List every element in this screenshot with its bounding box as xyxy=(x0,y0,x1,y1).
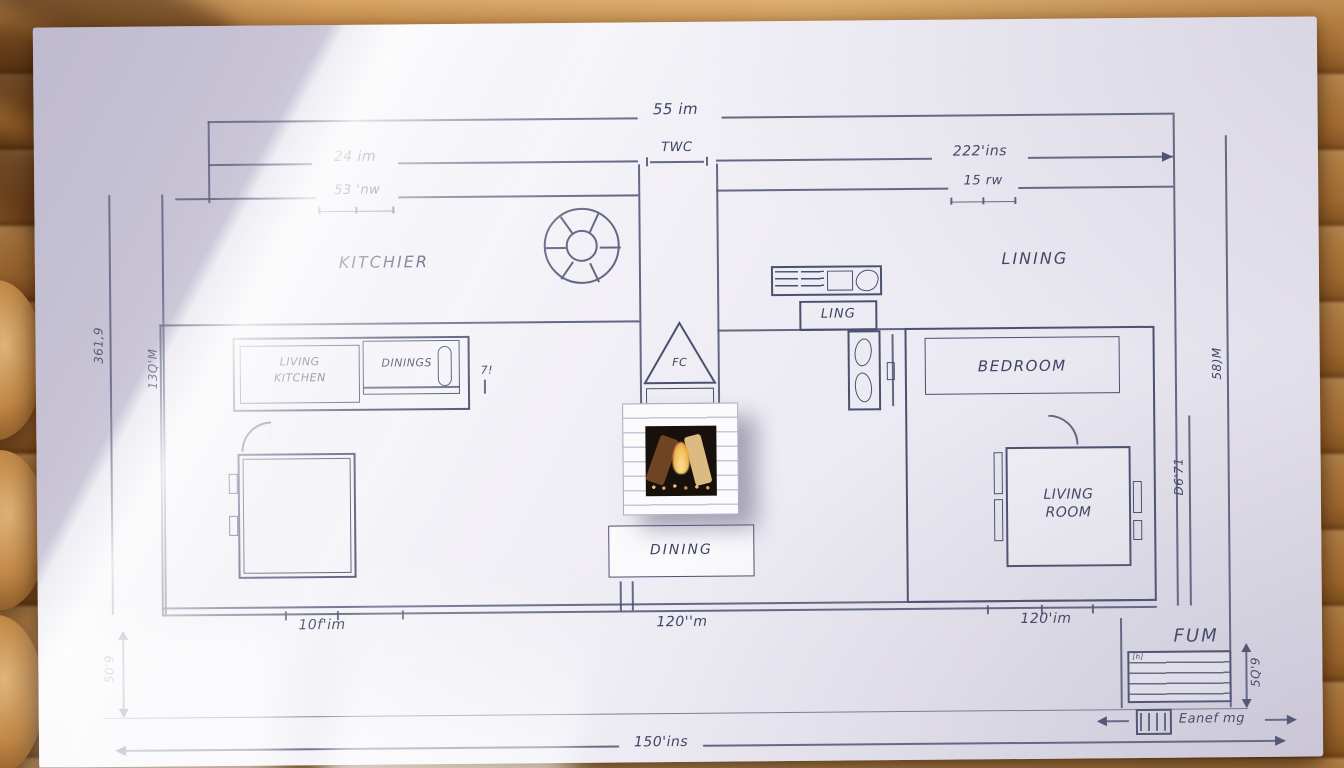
fum-label: FUM xyxy=(1146,625,1246,647)
fireplace xyxy=(622,402,739,515)
tick xyxy=(318,207,320,214)
dining-label: DINING xyxy=(608,541,754,558)
embers xyxy=(648,482,714,494)
dimension-line xyxy=(108,195,114,615)
living-room-label-2: ROOM xyxy=(1006,504,1131,521)
window-fixture xyxy=(1133,481,1142,513)
dimension-line xyxy=(722,113,1173,119)
tick xyxy=(484,380,486,394)
door-swing-arc xyxy=(241,422,271,452)
tick xyxy=(355,207,357,214)
door-leaf xyxy=(994,452,1003,494)
table-spoke xyxy=(560,261,574,279)
dimension-line xyxy=(1018,186,1173,189)
table-spoke xyxy=(589,263,600,283)
table-spoke xyxy=(600,246,621,248)
table-spoke xyxy=(545,247,566,249)
dim-bottom-a: 10f'im xyxy=(286,617,358,634)
wall-line xyxy=(620,581,622,610)
dimension-line xyxy=(1120,618,1123,708)
arrowhead xyxy=(1275,736,1286,746)
dimension-line xyxy=(208,117,638,123)
window-fixture xyxy=(1133,520,1142,540)
tick xyxy=(987,605,989,614)
dimension-line xyxy=(1225,135,1232,707)
dim-sub-right: 15 rw xyxy=(948,173,1018,189)
dimension-line xyxy=(398,160,638,164)
living-room-label-1: LIVING xyxy=(1006,486,1131,503)
wall-line xyxy=(159,320,639,326)
dim-right-outer: 58)M xyxy=(1210,347,1224,379)
dinings-label: DININGS xyxy=(363,356,451,370)
dimension-line xyxy=(122,633,125,717)
light-beam xyxy=(307,545,610,768)
dim-cell-small: 7! xyxy=(472,364,502,377)
burner xyxy=(801,271,824,291)
arrowhead xyxy=(118,631,128,640)
tick xyxy=(392,206,394,213)
living-kitchen-label-1: LIVING xyxy=(240,355,360,369)
dimension-line xyxy=(398,194,638,198)
tick xyxy=(982,197,984,204)
dimension-line xyxy=(1188,416,1192,606)
light-patch xyxy=(48,625,280,768)
energy-icon-bars xyxy=(1140,713,1168,731)
dim-left-outer: 361,9 xyxy=(91,327,105,364)
dim-bottom-b: 120''m xyxy=(646,614,718,631)
round-table xyxy=(543,208,620,285)
island-square-inner xyxy=(243,458,352,574)
living-kitchen-label-2: KITCHEN xyxy=(240,371,360,385)
tick xyxy=(646,157,648,166)
bedroom-label: BEDROOM xyxy=(925,356,1120,376)
ling-label: LING xyxy=(799,306,877,322)
wall-line xyxy=(632,581,634,610)
dim-top-total: 55 im xyxy=(629,100,721,119)
flue-label: FC xyxy=(642,356,718,370)
arrowhead xyxy=(1162,152,1173,162)
tick xyxy=(950,198,952,205)
dimension-line xyxy=(650,161,704,163)
room-label-kitchen: KITCHIER xyxy=(314,252,454,272)
stairs-tag: [h] xyxy=(1132,653,1156,661)
dim-upper-right: 222'ins xyxy=(932,143,1028,160)
extension-line xyxy=(208,121,211,203)
dim-upper-left: 24 im xyxy=(312,148,398,165)
dim-sub-left: 53 'nw xyxy=(316,182,398,198)
energy-label: Eanef mg xyxy=(1179,711,1271,727)
firebox xyxy=(645,426,717,497)
arrowhead xyxy=(115,746,126,756)
dimension-line xyxy=(1245,645,1248,707)
door-leaf xyxy=(994,499,1003,541)
arrowhead xyxy=(1097,716,1107,726)
wall-tab xyxy=(229,474,238,494)
blueprint-paper: 55 im 24 im 222'ins TWC 53 'nw 15 rw 361… xyxy=(33,16,1323,767)
dim-block xyxy=(887,362,895,380)
tick xyxy=(402,610,404,619)
counter-cell xyxy=(827,270,853,290)
burner xyxy=(775,271,798,291)
extension-line xyxy=(1173,113,1179,606)
dimension-line xyxy=(175,197,315,200)
arrowhead xyxy=(1242,699,1252,708)
dim-right-lower: D6'71 xyxy=(1172,458,1186,496)
dim-stairs-v: 5Q'9 xyxy=(1248,657,1262,687)
dimension-line xyxy=(208,163,312,166)
dimension-line xyxy=(716,158,932,162)
arrowhead xyxy=(119,709,129,718)
tick xyxy=(1014,197,1016,204)
dim-bottom-total: 150'ins xyxy=(619,734,703,751)
dim-bottom-c: 120'im xyxy=(1010,610,1082,627)
baseline xyxy=(103,708,1248,719)
table-hub xyxy=(566,230,598,262)
dim-left-inner: 13Q'M xyxy=(146,349,160,390)
dimension-line xyxy=(1028,156,1173,159)
table-spoke xyxy=(560,216,574,234)
dimension-line xyxy=(118,746,619,752)
dimension-line xyxy=(703,740,1283,747)
room-label-lining: LINING xyxy=(975,248,1095,268)
tick xyxy=(1092,604,1094,613)
tick xyxy=(706,157,708,166)
chimney-label: TWC xyxy=(638,140,716,156)
wall-tab xyxy=(229,516,238,536)
arrowhead xyxy=(1287,715,1297,725)
dimension-line xyxy=(716,188,948,192)
table-spoke xyxy=(589,213,600,233)
dim-bottom-left-v: 50'9 xyxy=(102,655,116,683)
